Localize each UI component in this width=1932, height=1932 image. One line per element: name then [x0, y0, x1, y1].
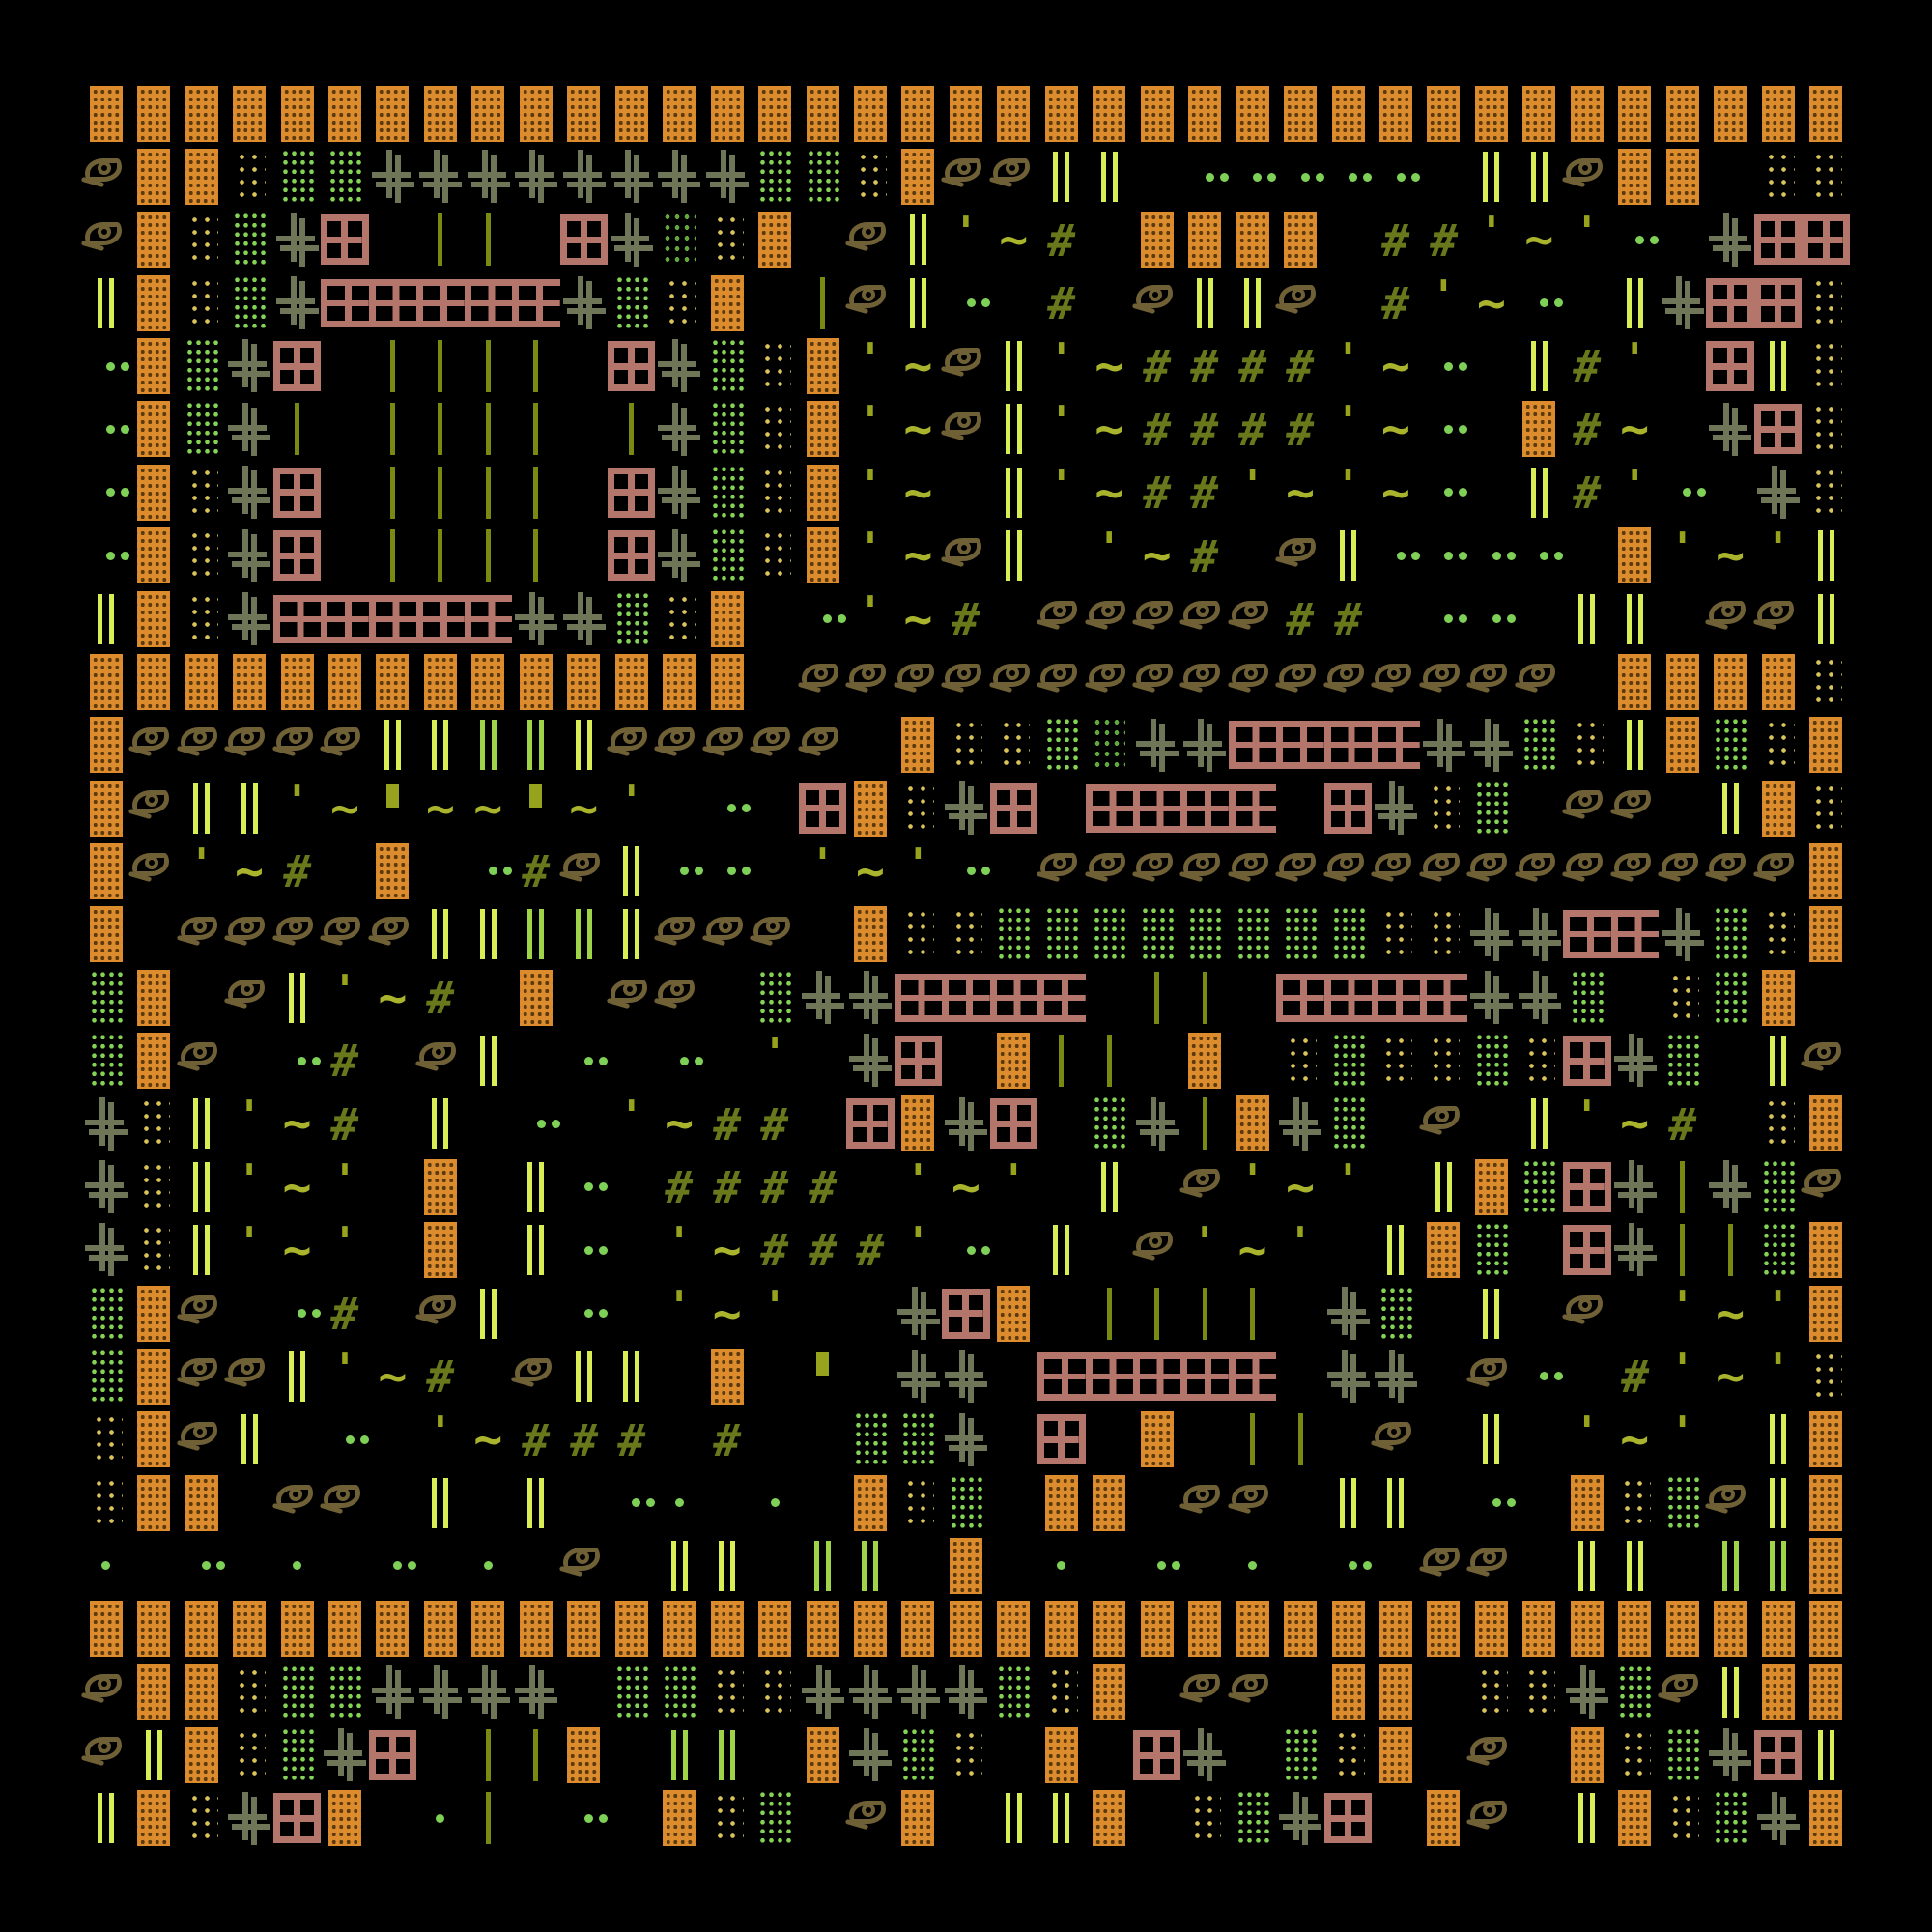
eye-icon-p-iris [1244, 667, 1258, 680]
hash-glyph: # [1560, 334, 1614, 397]
stem-bar [273, 398, 321, 461]
double-cross-glyph [225, 334, 272, 397]
double-bar-bright [178, 1155, 225, 1218]
tilde-glyph: ~ [1611, 1093, 1659, 1155]
hash-glyph: # [270, 839, 324, 902]
hash-glyph: # [748, 1218, 802, 1281]
dot-pair [560, 1218, 608, 1281]
orange-dot-block [178, 145, 225, 208]
eye-icon-p-iris [1483, 1804, 1496, 1817]
orange-dot-block [1420, 1598, 1467, 1661]
hash-glyph: # [1273, 587, 1327, 650]
empty-cell [799, 1029, 846, 1092]
tick-glyph: ' [1420, 271, 1467, 334]
orange-dot-block [129, 1598, 177, 1661]
tick-glyph: ' [1611, 461, 1659, 524]
double-cross-glyph [82, 1155, 129, 1218]
empty-cell [1659, 587, 1706, 650]
eye-icon [1037, 839, 1085, 902]
eye-icon-p-iris [1674, 1677, 1688, 1690]
double-cross-glyph [1516, 903, 1563, 966]
pane-strip-segment [512, 271, 559, 334]
empty-cell [608, 1029, 655, 1092]
eye-icon [1324, 839, 1372, 902]
stem-bar [416, 334, 464, 397]
yellow-dot-block [1324, 1723, 1372, 1786]
orange-dot-block [1611, 525, 1659, 587]
double-bar-bright [416, 714, 464, 777]
tick-glyph: ' [178, 839, 225, 902]
tick-glyph: ' [1086, 525, 1133, 587]
window-pane-icon [1706, 271, 1753, 334]
dot-pair [799, 587, 846, 650]
eye-icon-p-iris [1531, 667, 1545, 680]
orange-dot-block [1802, 1787, 1849, 1850]
orange-dot-block [799, 1598, 846, 1661]
orange-dot-block [1659, 650, 1706, 713]
yellow-dot-block [895, 1471, 942, 1534]
orange-dot-block [82, 650, 129, 713]
double-cross-glyph [1754, 1787, 1802, 1850]
tick-glyph: ' [1324, 1155, 1372, 1218]
double-bar-bright [608, 839, 655, 902]
orange-dot-block [225, 82, 272, 145]
pane-strip-segment [1229, 1345, 1276, 1407]
eye-icon [1563, 1282, 1610, 1345]
dot-pair [560, 1155, 608, 1218]
pane-strip-segment [1180, 1345, 1228, 1407]
eye-icon-p-iris [670, 730, 684, 744]
eye-icon [321, 714, 368, 777]
eye-icon [1037, 650, 1085, 713]
orange-dot-block [1372, 1723, 1419, 1786]
hash-glyph: # [1130, 461, 1184, 524]
eye-icon [1229, 1661, 1276, 1723]
empty-cell [1516, 1282, 1563, 1345]
orange-dot-block [1802, 1471, 1849, 1534]
empty-cell [1516, 1723, 1563, 1786]
double-cross-glyph [1754, 461, 1802, 524]
tilde-glyph: ~ [895, 398, 942, 461]
green-dot-block [225, 209, 272, 271]
eye-icon [416, 1282, 464, 1345]
empty-cell [608, 1787, 655, 1850]
double-bar-bright [1802, 587, 1849, 650]
double-cross-glyph [799, 1661, 846, 1723]
hash-glyph: # [1225, 398, 1279, 461]
tilde-glyph: ~ [942, 1155, 989, 1218]
double-cross-glyph [1659, 271, 1706, 334]
dot-pair [369, 1534, 416, 1597]
yellow-dot-block [751, 398, 798, 461]
pane-strip-segment [1276, 966, 1323, 1029]
eye-icon-p-iris [1578, 793, 1592, 807]
orange-dot-block [1324, 1661, 1372, 1723]
yellow-dot-block [178, 271, 225, 334]
orange-dot-block [1420, 1787, 1467, 1850]
double-cross-glyph [321, 1723, 368, 1786]
empty-cell [1420, 1661, 1467, 1723]
double-bar-green [465, 714, 512, 777]
eye-icon [225, 966, 272, 1029]
dot-pair [1133, 1534, 1180, 1597]
tilde-glyph: ~ [895, 461, 942, 524]
orange-dot-block [129, 1787, 177, 1850]
double-cross-glyph [416, 1661, 464, 1723]
double-bar-bright [990, 1787, 1037, 1850]
double-bar-bright [1516, 461, 1563, 524]
double-bar-bright [1563, 1534, 1610, 1597]
orange-dot-block [1706, 650, 1753, 713]
eye-icon-p-iris [193, 920, 207, 933]
eye-icon [369, 903, 416, 966]
green-dot-block [1706, 966, 1753, 1029]
eye-icon-p-iris [862, 1804, 875, 1817]
orange-dot-block [1754, 1598, 1802, 1661]
orange-dot-block [1611, 1787, 1659, 1850]
orange-dot-block [846, 903, 894, 966]
orange-dot-block [1372, 82, 1419, 145]
empty-cell [1516, 1787, 1563, 1850]
tilde-glyph: ~ [1086, 461, 1133, 524]
yellow-dot-block [655, 271, 702, 334]
hash-glyph: # [1178, 525, 1232, 587]
eye-icon [178, 903, 225, 966]
double-bar-bright [1516, 334, 1563, 397]
eye-icon [178, 1408, 225, 1471]
empty-cell [1229, 1723, 1276, 1786]
window-pane-icon [608, 334, 655, 397]
orange-dot-block [129, 82, 177, 145]
empty-cell [512, 209, 559, 271]
orange-dot-block [273, 1598, 321, 1661]
eye-icon [1229, 587, 1276, 650]
orange-dot-block [82, 903, 129, 966]
empty-cell [369, 1155, 416, 1218]
eye-icon [1180, 1471, 1228, 1534]
empty-cell [321, 398, 368, 461]
empty-cell [512, 1534, 559, 1597]
green-dot-block [990, 1661, 1037, 1723]
yellow-dot-block [1516, 1661, 1563, 1723]
hash-glyph: # [413, 1345, 468, 1407]
stem-bar [465, 461, 512, 524]
eye-icon [321, 903, 368, 966]
eye-icon-p-iris [1627, 793, 1640, 807]
yellow-dot-block [1467, 1661, 1515, 1723]
eye-icon [321, 1471, 368, 1534]
empty-cell [990, 1723, 1037, 1786]
eye-icon [82, 1661, 129, 1723]
quote-block [799, 1345, 846, 1407]
eye-icon-p-iris [1340, 856, 1353, 869]
stem-bar [799, 271, 846, 334]
tick-glyph: ' [416, 1408, 464, 1471]
yellow-dot-block [1180, 1787, 1228, 1850]
yellow-dot-block [178, 587, 225, 650]
tick-glyph: ' [1754, 1282, 1802, 1345]
empty-cell [1324, 271, 1372, 334]
eye-icon [273, 903, 321, 966]
double-bar-bright [895, 271, 942, 334]
green-dot-block [178, 398, 225, 461]
eye-icon [1467, 839, 1515, 902]
dot-pair [942, 1218, 989, 1281]
eye-icon [1706, 839, 1753, 902]
window-pane-icon [1754, 271, 1802, 334]
orange-dot-block [1802, 903, 1849, 966]
orange-dot-block [1180, 209, 1228, 271]
empty-cell [1229, 1029, 1276, 1092]
stem-bar [1229, 1282, 1276, 1345]
window-pane-icon [1563, 1155, 1610, 1218]
double-bar-green [512, 714, 559, 777]
empty-cell [655, 1345, 702, 1407]
double-cross-glyph [1324, 1282, 1372, 1345]
window-pane-icon [1754, 398, 1802, 461]
tick-glyph: ' [1037, 398, 1085, 461]
double-cross-glyph [942, 1093, 989, 1155]
eye-icon [225, 1345, 272, 1407]
eye-icon-p-iris [1292, 541, 1305, 554]
empty-cell [512, 1029, 559, 1092]
empty-cell [321, 461, 368, 524]
tick-glyph: ' [846, 587, 894, 650]
orange-dot-block [1372, 1598, 1419, 1661]
double-cross-glyph [1706, 1155, 1753, 1218]
double-bar-green [512, 903, 559, 966]
double-cross-glyph [1563, 1661, 1610, 1723]
eye-icon [655, 966, 702, 1029]
dot-pair [1516, 271, 1563, 334]
dot-pair [82, 334, 129, 397]
yellow-dot-block [82, 1471, 129, 1534]
dot-pair [608, 1471, 655, 1534]
double-cross-glyph [895, 1661, 942, 1723]
orange-dot-block [273, 650, 321, 713]
eye-icon-p-iris [814, 730, 828, 744]
double-bar-green [846, 1534, 894, 1597]
orange-dot-block [1563, 1471, 1610, 1534]
hash-glyph: # [413, 966, 468, 1029]
tick-glyph: ' [225, 1155, 272, 1218]
double-bar-bright [273, 1345, 321, 1407]
orange-dot-block [369, 650, 416, 713]
eye-icon-p-iris [193, 730, 207, 744]
empty-cell [560, 525, 608, 587]
orange-dot-block [321, 1787, 368, 1850]
tilde-glyph: ~ [1372, 398, 1419, 461]
dot-pair [1420, 525, 1467, 587]
yellow-dot-block [703, 1787, 751, 1850]
double-bar-bright [1802, 1723, 1849, 1786]
orange-dot-block [1037, 1471, 1085, 1534]
eye-icon-p-iris [289, 1488, 302, 1501]
eye-icon [942, 334, 989, 397]
hash-glyph: # [1130, 334, 1184, 397]
orange-dot-block [416, 1218, 464, 1281]
empty-cell [1180, 1534, 1228, 1597]
yellow-dot-block [1516, 1029, 1563, 1092]
eye-icon [799, 650, 846, 713]
orange-dot-block [1086, 1787, 1133, 1850]
double-bar-bright [82, 587, 129, 650]
empty-cell [178, 966, 225, 1029]
eye-icon-p-iris [719, 730, 732, 744]
empty-cell [1659, 1534, 1706, 1597]
double-cross-glyph [1420, 714, 1467, 777]
orange-dot-block [512, 82, 559, 145]
eye-icon [560, 1534, 608, 1597]
orange-dot-block [178, 650, 225, 713]
orange-dot-block [655, 82, 702, 145]
window-pane-icon [990, 777, 1037, 839]
eye-icon-p-iris [1578, 1298, 1592, 1312]
double-bar-bright [1611, 271, 1659, 334]
green-dot-block [608, 271, 655, 334]
green-dot-block [1467, 1218, 1515, 1281]
empty-cell [1276, 1534, 1323, 1597]
orange-dot-block [1754, 650, 1802, 713]
empty-cell [1133, 1787, 1180, 1850]
empty-cell [369, 1218, 416, 1281]
dot-pair [1420, 334, 1467, 397]
dot [273, 1534, 321, 1597]
eye-icon [751, 714, 798, 777]
double-bar-bright [1229, 271, 1276, 334]
empty-cell [1133, 1661, 1180, 1723]
empty-cell [1611, 966, 1659, 1029]
eye-icon [82, 145, 129, 208]
double-cross-glyph [608, 209, 655, 271]
orange-dot-block [1372, 1661, 1419, 1723]
orange-dot-block [465, 1598, 512, 1661]
empty-cell [416, 1534, 464, 1597]
dot-pair [1420, 461, 1467, 524]
stem-bar [1276, 1408, 1323, 1471]
eye-icon-p-iris [957, 541, 971, 554]
yellow-dot-block [225, 145, 272, 208]
tilde-glyph: ~ [1706, 1282, 1753, 1345]
yellow-dot-block [1802, 777, 1849, 839]
double-cross-glyph [655, 398, 702, 461]
stem-bar [465, 1787, 512, 1850]
orange-dot-block [1659, 145, 1706, 208]
dot-pair [1516, 1345, 1563, 1407]
double-bar-bright [82, 1787, 129, 1850]
hash-glyph: # [556, 1408, 611, 1471]
double-cross-glyph [465, 145, 512, 208]
tilde-glyph: ~ [895, 334, 942, 397]
eye-icon [1706, 1471, 1753, 1534]
empty-cell [1516, 1408, 1563, 1471]
eye-icon [1467, 650, 1515, 713]
eye-icon-p-iris [862, 225, 875, 239]
empty-cell [751, 839, 798, 902]
empty-cell [1037, 1093, 1085, 1155]
double-cross-glyph [273, 271, 321, 334]
empty-cell [1467, 398, 1515, 461]
hash-glyph: # [318, 1029, 372, 1092]
eye-icon [1229, 1471, 1276, 1534]
orange-dot-block [82, 714, 129, 777]
orange-dot-block [129, 461, 177, 524]
stem-bar [1086, 1029, 1133, 1092]
double-cross-glyph [512, 1661, 559, 1723]
double-cross-glyph [655, 145, 702, 208]
green-dot-block [1659, 1471, 1706, 1534]
tilde-glyph: ~ [655, 1093, 702, 1155]
orange-dot-block [655, 1598, 702, 1661]
window-pane-icon [321, 209, 368, 271]
orange-dot-block [1802, 1534, 1849, 1597]
empty-cell [990, 1471, 1037, 1534]
pane-strip-segment [321, 587, 368, 650]
quote-block [369, 777, 416, 839]
double-bar-bright [1611, 714, 1659, 777]
window-pane-icon [273, 334, 321, 397]
orange-dot-block [1802, 1218, 1849, 1281]
eye-icon [560, 839, 608, 902]
double-bar-bright [990, 334, 1037, 397]
hash-glyph: # [1369, 271, 1423, 334]
tick-glyph: ' [225, 1218, 272, 1281]
orange-dot-block [178, 1723, 225, 1786]
double-cross-glyph [560, 587, 608, 650]
empty-cell [1802, 966, 1849, 1029]
tilde-glyph: ~ [369, 966, 416, 1029]
orange-dot-block [990, 1598, 1037, 1661]
glyph-mosaic-grid: '~###'~'##'~'~'~####'~#''~'~####'~#~'~'~… [82, 82, 1850, 1850]
eye-icon-p-iris [1149, 288, 1162, 301]
double-cross-glyph [895, 1282, 942, 1345]
orange-dot-block [178, 1661, 225, 1723]
hash-glyph: # [509, 839, 563, 902]
window-pane-icon [1324, 777, 1372, 839]
eye-icon-p-iris [1531, 856, 1545, 869]
orange-dot-block [1659, 714, 1706, 777]
orange-dot-block [225, 650, 272, 713]
double-bar-bright [512, 1155, 559, 1218]
eye-icon-p-iris [241, 730, 254, 744]
double-cross-glyph [416, 145, 464, 208]
orange-dot-block [1180, 1029, 1228, 1092]
eye-icon [799, 714, 846, 777]
yellow-dot-block [751, 334, 798, 397]
orange-dot-block [129, 145, 177, 208]
eye-icon [942, 145, 989, 208]
double-bar-bright [1563, 1787, 1610, 1850]
yellow-dot-block [1276, 1029, 1323, 1092]
dark-green-dot-block [655, 209, 702, 271]
orange-dot-block [846, 82, 894, 145]
pane-strip-segment [1229, 777, 1276, 839]
empty-cell [799, 209, 846, 271]
orange-dot-block [1133, 1598, 1180, 1661]
orange-dot-block [1802, 1093, 1849, 1155]
green-dot-block [1324, 1029, 1372, 1092]
empty-cell [799, 903, 846, 966]
green-dot-block [1229, 1787, 1276, 1850]
orange-dot-block [1276, 82, 1323, 145]
green-dot-block [751, 966, 798, 1029]
orange-dot-block [1802, 1661, 1849, 1723]
orange-dot-block [1229, 1093, 1276, 1155]
empty-cell [416, 839, 464, 902]
eye-icon [1754, 587, 1802, 650]
empty-cell [465, 1218, 512, 1281]
green-dot-block [82, 1029, 129, 1092]
